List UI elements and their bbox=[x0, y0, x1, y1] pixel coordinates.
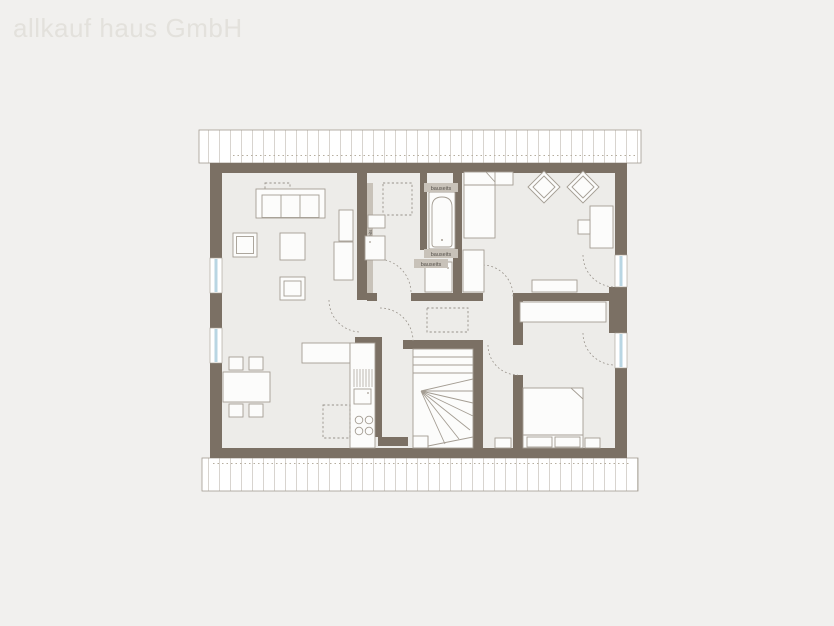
svg-text:bauseits: bauseits bbox=[431, 252, 452, 258]
wardrobe bbox=[463, 250, 484, 292]
window-left-1 bbox=[210, 258, 222, 293]
desk bbox=[590, 206, 613, 248]
chair bbox=[229, 357, 243, 370]
bathtub bbox=[429, 192, 455, 249]
coffee-table bbox=[280, 233, 305, 260]
window-left-2 bbox=[210, 328, 222, 363]
nightstand bbox=[493, 172, 513, 185]
sink bbox=[354, 369, 372, 387]
dining-table bbox=[223, 372, 270, 402]
roof-overhang-bottom bbox=[202, 458, 638, 491]
double-bed bbox=[523, 388, 583, 448]
desk-chair bbox=[578, 220, 590, 234]
armchair bbox=[233, 233, 257, 257]
staircase bbox=[413, 349, 473, 448]
window-right-2 bbox=[615, 333, 627, 368]
shower-tray bbox=[365, 236, 385, 260]
washbasin bbox=[368, 215, 385, 228]
cabinet-wide bbox=[334, 242, 353, 280]
svg-text:bauseits: bauseits bbox=[431, 186, 452, 192]
floor-plan-image: allkauf haus GmbH bbox=[0, 0, 834, 626]
sofa bbox=[256, 189, 325, 218]
kitchen-counter-top bbox=[302, 343, 350, 363]
chair bbox=[249, 357, 263, 370]
wardrobe bbox=[520, 302, 606, 322]
bauseits-label-tub-bottom1: bauseits bbox=[424, 249, 458, 258]
nightstand bbox=[585, 438, 600, 448]
window-right-1 bbox=[615, 255, 627, 287]
sideboard bbox=[532, 280, 577, 292]
roof-overhang-top bbox=[199, 130, 641, 163]
chair bbox=[249, 404, 263, 417]
niche-shelf bbox=[495, 438, 511, 448]
bauseits-label-tub-bottom2: bauseits bbox=[414, 259, 448, 268]
cabinet-tall bbox=[339, 210, 353, 241]
bauseits-label-tub-top: bauseits bbox=[424, 183, 458, 192]
chair bbox=[229, 404, 243, 417]
side-table bbox=[280, 277, 305, 300]
svg-text:bauseits: bauseits bbox=[421, 262, 442, 268]
single-bed bbox=[464, 172, 495, 238]
company-watermark: allkauf haus GmbH bbox=[13, 13, 243, 43]
